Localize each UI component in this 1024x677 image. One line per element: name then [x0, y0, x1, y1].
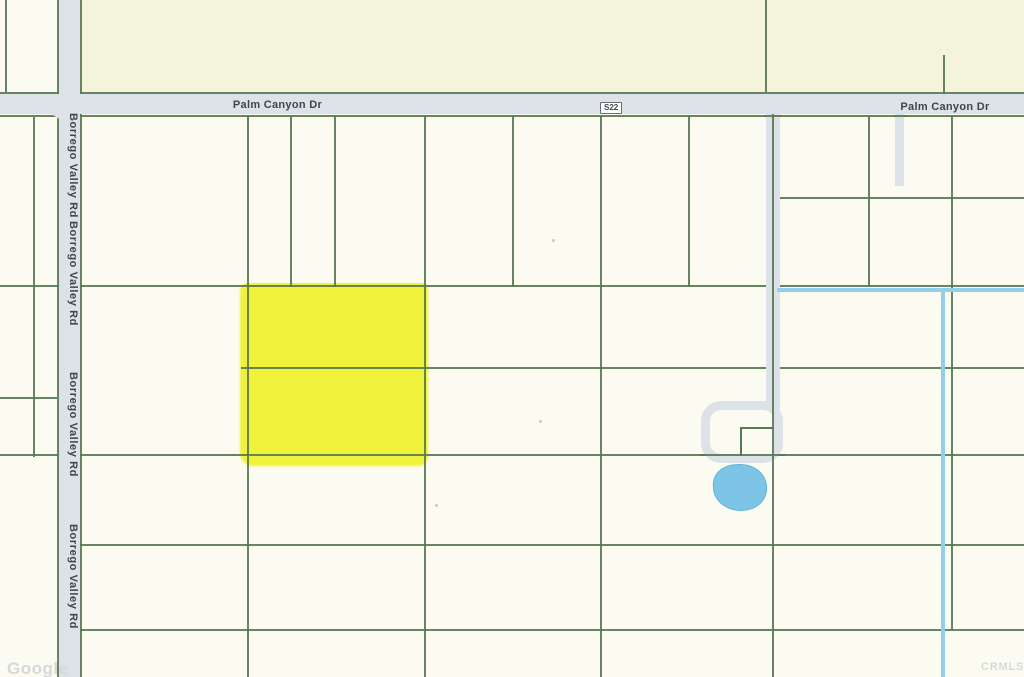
- parcel-line: [0, 115, 1024, 117]
- parcel-line: [0, 397, 57, 399]
- road-label-borrego-2: Borrego Valley Rd: [61, 220, 79, 326]
- scan-speck: [435, 504, 438, 507]
- parcel-line: [700, 454, 785, 456]
- parcel-line: [951, 116, 953, 630]
- parcel-line: [334, 116, 336, 287]
- parcel-line: [512, 116, 514, 287]
- crmls-watermark: CRMLS: [981, 661, 1024, 673]
- parcel-line: [290, 116, 292, 287]
- parcel-line: [943, 55, 945, 94]
- beige-area: [82, 0, 1024, 92]
- canal-line-horizontal: [777, 288, 1024, 292]
- parcel-line: [600, 116, 602, 677]
- route-shield-s22: S22: [600, 102, 622, 114]
- parcel-line: [247, 116, 249, 677]
- dead-end-road-stub: [895, 114, 904, 186]
- parcel-line: [780, 197, 1024, 199]
- parcel-line: [688, 116, 690, 287]
- road-label-borrego-1: Borrego Valley Rd: [61, 113, 79, 217]
- parcel-line: [893, 115, 907, 117]
- parcel-line: [772, 114, 774, 677]
- parcel-line: [764, 115, 782, 117]
- parcel-line: [5, 0, 7, 92]
- small-parcel-in-loop: [740, 427, 774, 456]
- road-label-palm-canyon-right: Palm Canyon Dr: [890, 100, 1000, 114]
- parcel-line: [80, 629, 1024, 631]
- parcel-line: [241, 367, 1024, 369]
- pond: [712, 463, 768, 513]
- road-label-borrego-4: Borrego Valley Rd: [61, 523, 79, 629]
- google-watermark: Google: [7, 659, 69, 677]
- parcel-line: [0, 285, 1024, 287]
- parcel-line: [80, 544, 1024, 546]
- road-label-borrego-3: Borrego Valley Rd: [61, 372, 79, 468]
- parcel-line: [33, 117, 35, 457]
- scan-speck: [552, 239, 555, 242]
- parcel-line: [868, 116, 870, 287]
- parcel-line: [424, 116, 426, 677]
- scanned-parcel-map: Palm Canyon Dr Palm Canyon Dr S22 Borreg…: [0, 0, 1024, 677]
- scan-speck: [539, 420, 542, 423]
- palm-canyon-dr-road: [0, 94, 1024, 114]
- canal-line-vertical: [941, 289, 945, 677]
- highlighted-parcel: [241, 283, 427, 463]
- parcel-line: [0, 454, 1024, 456]
- road-label-palm-canyon-left: Palm Canyon Dr: [215, 98, 340, 112]
- parcel-line: [765, 0, 767, 92]
